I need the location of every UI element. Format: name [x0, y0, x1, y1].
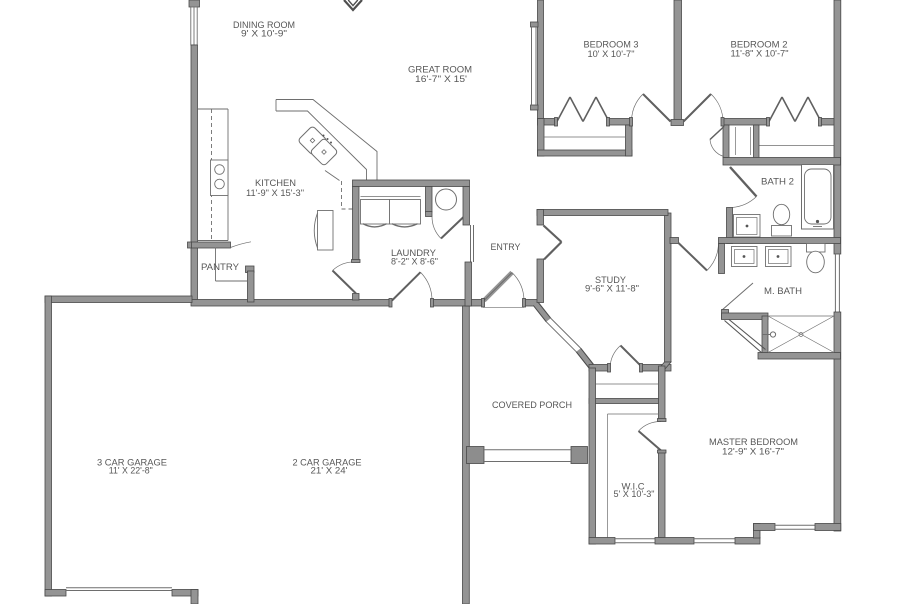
- svg-text:MASTER BEDROOM: MASTER BEDROOM: [709, 437, 798, 447]
- svg-text:11'-8" X 10'-7": 11'-8" X 10'-7": [731, 49, 789, 59]
- svg-text:10' X 10'-7": 10' X 10'-7": [588, 49, 635, 59]
- svg-text:9' X 10'-9": 9' X 10'-9": [241, 29, 287, 39]
- svg-text:PANTRY: PANTRY: [201, 262, 239, 272]
- svg-text:11'-9" X 15'-3": 11'-9" X 15'-3": [246, 188, 304, 198]
- svg-text:GREAT ROOM: GREAT ROOM: [408, 65, 472, 75]
- svg-text:21' X 24': 21' X 24': [311, 466, 348, 476]
- svg-text:12'-9" X 16'-7": 12'-9" X 16'-7": [722, 447, 784, 457]
- svg-text:BEDROOM 3: BEDROOM 3: [584, 40, 639, 50]
- svg-text:16'-7" X 15': 16'-7" X 15': [415, 74, 467, 84]
- svg-text:5' X 10'-3": 5' X 10'-3": [614, 489, 655, 499]
- svg-text:11' X 22'-8": 11' X 22'-8": [109, 466, 153, 476]
- svg-text:ENTRY: ENTRY: [491, 242, 521, 252]
- svg-text:COVERED PORCH: COVERED PORCH: [492, 400, 572, 410]
- svg-text:8'-2" X 8'-6": 8'-2" X 8'-6": [391, 257, 438, 267]
- svg-text:M. BATH: M. BATH: [764, 286, 802, 296]
- svg-text:9'-6" X 11'-8": 9'-6" X 11'-8": [585, 284, 639, 294]
- svg-text:KITCHEN: KITCHEN: [255, 178, 296, 188]
- svg-text:BATH 2: BATH 2: [761, 177, 794, 187]
